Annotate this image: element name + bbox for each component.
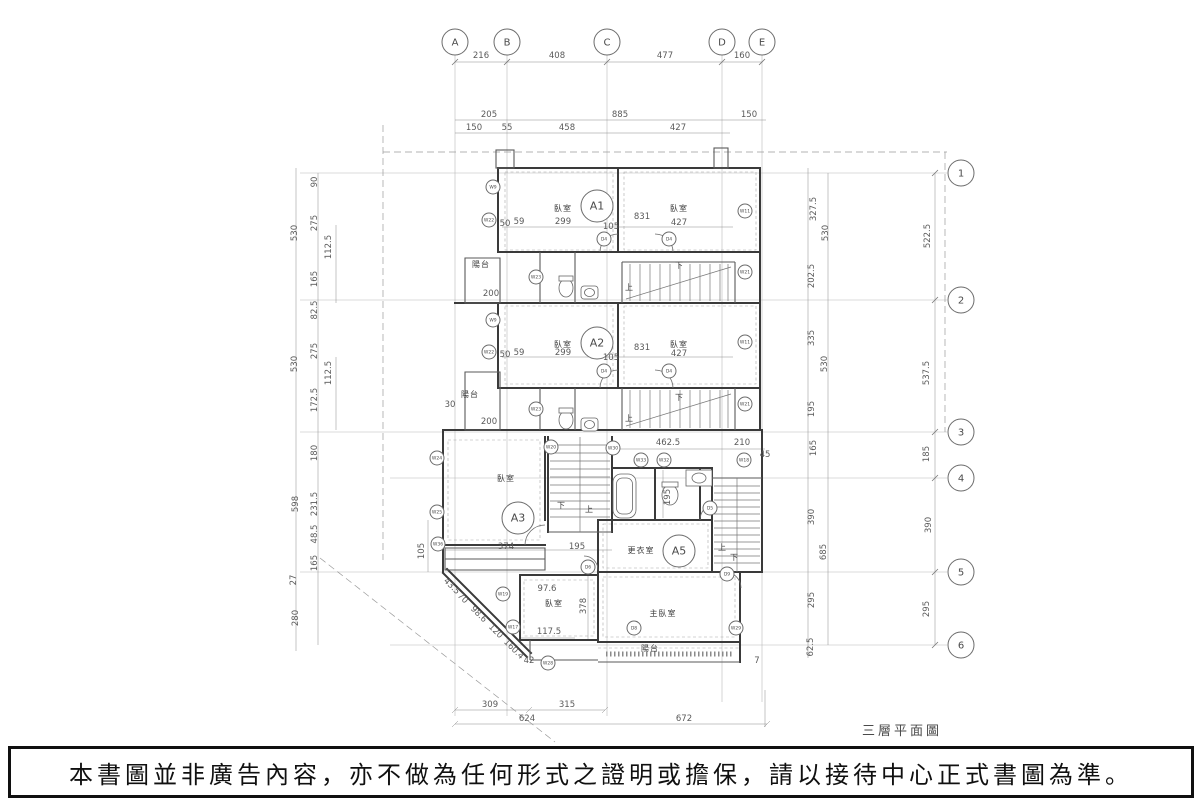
disclaimer-text: 本書圖並非廣告內容，亦不做為任何形式之證明或擔保，請以接待中心正式書圖為準。 [69, 755, 1133, 790]
dimension-label: 7 [754, 656, 759, 666]
opening-tag-bubble-label: W22 [484, 350, 494, 356]
room-label: 臥室 [670, 203, 688, 213]
room-label: 主臥室 [650, 608, 677, 618]
opening-tag-bubble-label: D9 [724, 572, 730, 578]
room-label: 臥室 [497, 473, 515, 483]
dimension-label: 105 [417, 543, 427, 559]
dimension-label: 45 [760, 450, 771, 460]
dimension-label: 172.5 [310, 388, 320, 412]
dimension-label: 295 [922, 601, 932, 617]
dimension-label: 50 [500, 350, 511, 360]
stair-direction-label: 上 [718, 543, 726, 552]
dimension-label: 327.5 [809, 197, 819, 221]
dimension-label: 831 [634, 343, 650, 353]
opening-tag-bubble-label: W29 [731, 626, 741, 632]
dimension-label: 315 [559, 700, 575, 710]
dimension-label: 685 [819, 544, 829, 560]
opening-tag-bubble-label: W20 [546, 445, 556, 451]
dimension-label: 427 [671, 218, 687, 228]
opening-tag-bubble-label: D4 [666, 237, 672, 243]
grid-column-bubble-label: B [504, 38, 511, 49]
dimension-label: 90 [310, 177, 320, 188]
dimension-label: 105 [603, 222, 619, 232]
grid-row-bubble-label: 6 [958, 641, 964, 652]
opening-tag-bubble-label: W21 [740, 270, 750, 276]
dimension-label: 205 [481, 110, 497, 120]
stair-direction-label: 下 [675, 261, 683, 270]
dimension-label: 97.6 [538, 584, 557, 594]
dimension-label: 185 [922, 446, 932, 462]
opening-tag-bubble-label: D4 [601, 237, 607, 243]
dimension-label: 477 [657, 51, 673, 61]
unit-bubble-label: A1 [590, 200, 605, 213]
drawing-title: 三層平面圖 [862, 720, 1022, 739]
dimension-label: 195 [663, 489, 673, 505]
dimension-label: 408 [549, 51, 565, 61]
dimension-label: 458 [559, 123, 575, 133]
dimension-label: 390 [924, 517, 934, 533]
opening-tag-bubble-label: W30 [608, 446, 618, 452]
dimension-label: 42 [524, 656, 535, 666]
dimension-label: 165 [809, 440, 819, 456]
room-label: 臥室 [545, 598, 563, 608]
opening-tag-bubble-label: W19 [498, 592, 508, 598]
dimension-label: 390 [807, 509, 817, 525]
dimension-label: 200 [483, 289, 499, 299]
opening-tag-bubble-label: W11 [740, 340, 750, 346]
grid-column-bubble-label: D [718, 38, 726, 49]
dimension-label: 598 [291, 496, 301, 512]
dimension-label: 150 [466, 123, 482, 133]
door-swings [525, 234, 741, 588]
room-label: 陽台 [472, 259, 490, 269]
dimension-label: 200 [481, 417, 497, 427]
opening-tag-bubble-label: W9 [489, 318, 496, 324]
dimension-label: 335 [807, 330, 817, 346]
stair-direction-label: 下 [557, 501, 565, 510]
opening-tag-bubble-label: D4 [601, 369, 607, 375]
dimension-label: 462.5 [656, 438, 680, 448]
unit-bubble-label: A2 [590, 337, 605, 350]
dimension-label: 280 [291, 610, 301, 626]
grid-row-bubble-label: 5 [958, 568, 964, 579]
stair-direction-label: 上 [625, 414, 633, 423]
dimension-label: 427 [670, 123, 686, 133]
opening-tag-bubble-label: W28 [543, 661, 553, 667]
dimension-label: 30 [445, 400, 456, 410]
dimension-label: 216 [473, 51, 489, 61]
room-label: 臥室 [670, 339, 688, 349]
grid-column-bubble-label: A [452, 38, 459, 49]
dimension-label: 165 [310, 271, 320, 287]
dimension-label: 117.5 [537, 627, 561, 637]
dimension-label: 112.5 [324, 235, 334, 259]
opening-tag-bubble-label: W23 [531, 407, 541, 413]
dimension-label: 275 [310, 215, 320, 231]
fixtures [559, 276, 712, 518]
opening-tag-bubble-label: D8 [631, 626, 637, 632]
dimension-label: 210 [734, 438, 750, 448]
dimension-label: 180 [310, 445, 320, 461]
room-label: 陽台 [461, 389, 479, 399]
dimension-label: 530 [821, 225, 831, 241]
dimension-label: 160.4 [501, 637, 525, 661]
dimension-label: 59 [514, 217, 525, 227]
opening-tag-bubble-label: W23 [531, 275, 541, 281]
stair-direction-label: 下 [730, 553, 738, 562]
disclaimer-box: 本書圖並非廣告內容，亦不做為任何形式之證明或擔保，請以接待中心正式書圖為準。 [8, 746, 1194, 798]
dimension-label: 672 [676, 714, 692, 724]
stair-direction-label: 上 [585, 505, 593, 514]
dimension-label: 831 [634, 212, 650, 222]
dimension-label: 275 [310, 343, 320, 359]
grid-lines [300, 55, 947, 716]
dimension-label: 427 [671, 349, 687, 359]
dimension-label: 231.5 [310, 492, 320, 516]
stair-direction-label: 上 [625, 283, 633, 292]
opening-tag-bubble-label: D5 [707, 506, 713, 512]
opening-tag-bubble-label: W25 [432, 510, 442, 516]
grid-row-bubble-label: 4 [958, 474, 964, 485]
room-label: 更衣室 [628, 545, 655, 555]
grid-row-bubble-label: 1 [958, 169, 964, 180]
dimension-label: 55 [502, 123, 513, 133]
opening-tag-bubble-label: W36 [433, 542, 443, 548]
dimension-label: 624 [519, 714, 535, 724]
dimension-label: 27 [289, 575, 299, 586]
dimension-label: 885 [612, 110, 628, 120]
dimension-label: 105 [603, 353, 619, 363]
dimension-label: 309 [482, 700, 498, 710]
dimension-label: 530 [290, 356, 300, 372]
dimension-label: 82.5 [310, 301, 320, 320]
floor-plan-canvas: ABCDE123456A1A2A3A5W9W22W23D4D4W11W21W9W… [0, 0, 1200, 745]
dimension-label: 530 [820, 356, 830, 372]
opening-tag-bubble-label: W21 [740, 402, 750, 408]
opening-tag-bubble-label: W33 [636, 458, 646, 464]
dimension-lines [296, 59, 935, 727]
unit-bubble-label: A3 [511, 512, 526, 525]
opening-tag-bubble-label: W32 [659, 458, 669, 464]
opening-tag-bubble-label: W22 [484, 218, 494, 224]
stair-direction-label: 下 [675, 393, 683, 402]
opening-tag-bubble-label: W9 [489, 185, 496, 191]
dimension-label: 299 [555, 348, 571, 358]
dimension-label: 202.5 [807, 264, 817, 288]
dimension-label: 59 [514, 348, 525, 358]
floor-plan-drawing: ABCDE123456A1A2A3A5W9W22W23D4D4W11W21W9W… [0, 0, 1200, 745]
opening-tag-bubble-label: D6 [585, 565, 591, 571]
dimension-label: 299 [555, 217, 571, 227]
room-label: 臥室 [554, 203, 572, 213]
dimension-label: 374 [498, 542, 514, 552]
dimension-label: 62.5 [806, 638, 816, 657]
dimension-label: 530 [290, 225, 300, 241]
room-label: 陽台 [641, 643, 659, 653]
dimension-label: 295 [807, 592, 817, 608]
dimension-label: 48.5 [310, 525, 320, 544]
dimension-label: 378 [579, 598, 589, 614]
dimension-label: 522.5 [923, 224, 933, 248]
dimension-label: 537.5 [922, 361, 932, 385]
grid-column-bubble-label: E [759, 38, 765, 49]
dimension-label: 160 [734, 51, 750, 61]
opening-tag-bubble-label: D4 [666, 369, 672, 375]
dimension-label: 150 [741, 110, 757, 120]
dimension-label: 195 [569, 542, 585, 552]
dimension-label: 165 [310, 555, 320, 571]
opening-tag-bubble-label: W11 [740, 209, 750, 215]
opening-tag-bubble-label: W18 [739, 458, 749, 464]
unit-bubble-label: A5 [672, 545, 687, 558]
dimension-label: 112.5 [324, 361, 334, 385]
dimension-label: 195 [807, 401, 817, 417]
opening-tag-bubble-label: W24 [432, 456, 442, 462]
grid-row-bubble-label: 2 [958, 296, 964, 307]
opening-tag-bubble-label: W17 [508, 625, 518, 631]
grid-row-bubble-label: 3 [958, 428, 964, 439]
grid-column-bubble-label: C [604, 38, 611, 49]
stair-treads [550, 264, 760, 572]
dimension-label: 50 [500, 219, 511, 229]
